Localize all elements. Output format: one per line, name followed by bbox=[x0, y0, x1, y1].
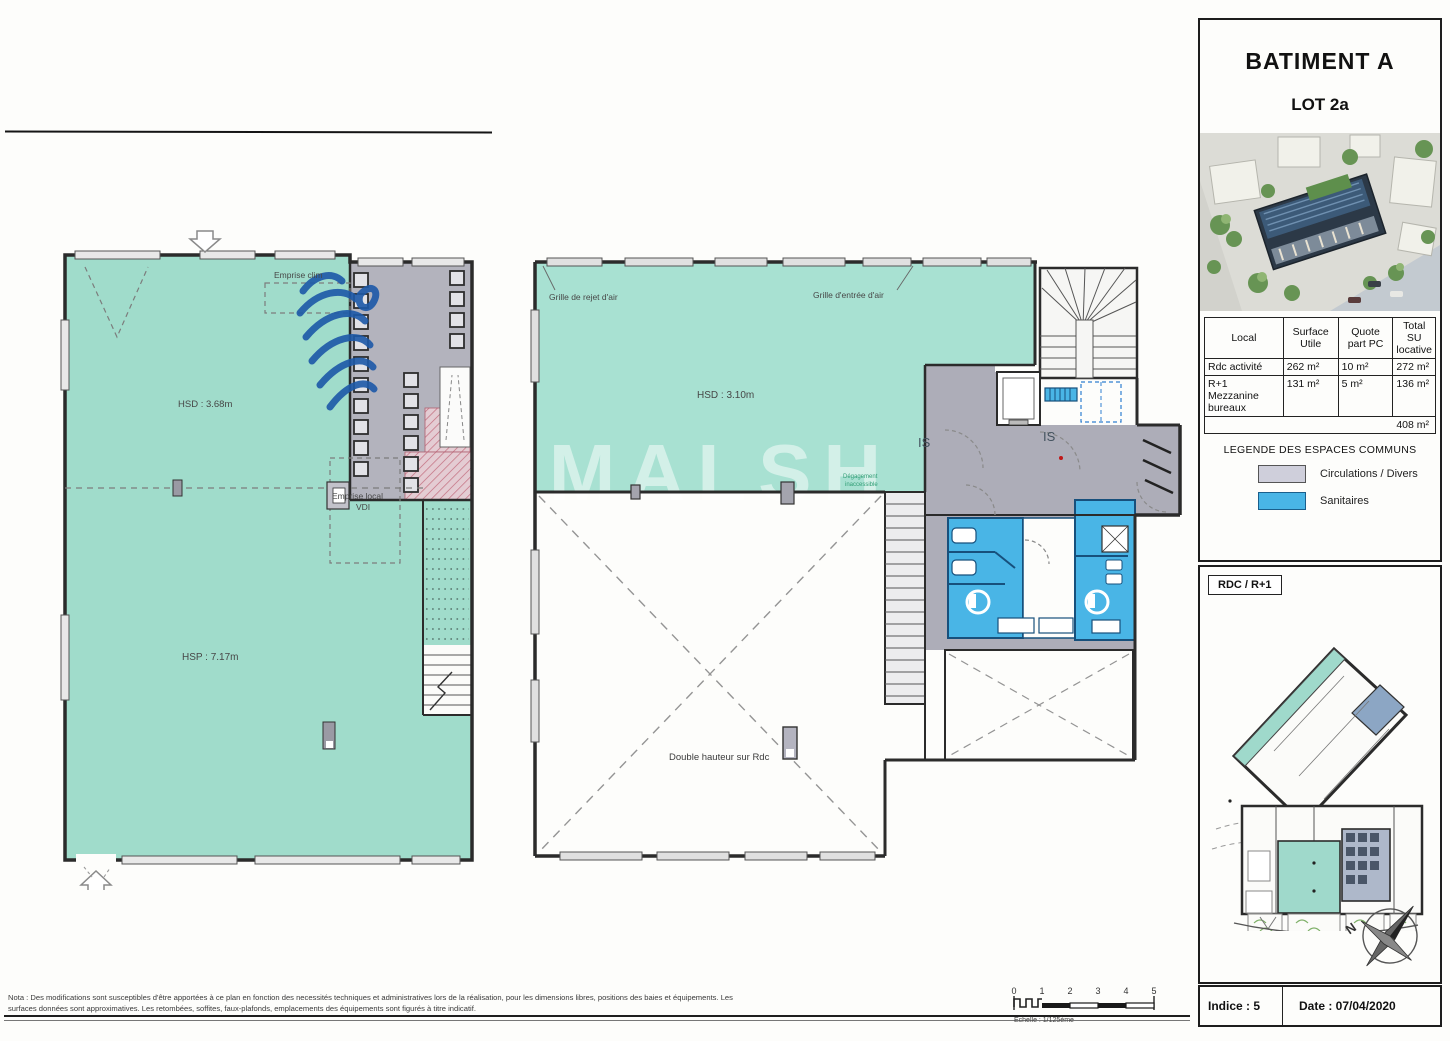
rdc-entry-door-gap bbox=[76, 854, 116, 865]
cell-total: 136 m² bbox=[1393, 376, 1436, 417]
cell-surface: 262 m² bbox=[1283, 359, 1338, 376]
key-plan-box: RDC / R+1 bbox=[1198, 565, 1442, 984]
cell-surface: 131 m² bbox=[1283, 376, 1338, 417]
r1-blue-grille bbox=[1045, 382, 1121, 422]
sanitaires-swatch bbox=[1258, 492, 1306, 510]
date-field: Date : 07/04/2020 bbox=[1283, 987, 1440, 1025]
legend-item-sanitaires: Sanitaires bbox=[1258, 492, 1440, 510]
label-degagement-2: inaccessible bbox=[845, 482, 878, 488]
label-hsd-r1: HSD : 3.10m bbox=[697, 390, 754, 401]
lot-title: LOT 2a bbox=[1200, 95, 1440, 115]
indice-field: Indice : 5 bbox=[1200, 987, 1283, 1025]
aerial-render-image bbox=[1200, 133, 1440, 311]
scale-tick-3: 3 bbox=[1095, 986, 1100, 996]
surface-table: Local Surface Utile Quote part PC Total … bbox=[1204, 317, 1436, 434]
cell-quote: 5 m² bbox=[1338, 376, 1393, 417]
legend-label: Circulations / Divers bbox=[1320, 468, 1418, 480]
label-hsd-rdc: HSD : 3.68m bbox=[178, 399, 232, 410]
rdc-room-fills bbox=[65, 255, 472, 860]
floor-plan-rdc: Emprise clim HSD : 3.68m Emprise local V… bbox=[60, 225, 475, 890]
r1-winder-stair bbox=[1040, 268, 1137, 378]
table-row: Rdc activité 262 m² 10 m² 272 m² bbox=[1205, 359, 1436, 376]
scale-caption: Echelle : 1/125ème bbox=[1014, 1017, 1074, 1024]
scale-tick-0: 0 bbox=[1011, 986, 1016, 996]
cell-total: 272 m² bbox=[1393, 359, 1436, 376]
label-emprise-vdi-1: Emprise local bbox=[332, 491, 383, 501]
table-total-row: 408 m² bbox=[1205, 417, 1436, 434]
title-block-footer: Indice : 5 Date : 07/04/2020 bbox=[1198, 985, 1442, 1027]
circulations-swatch bbox=[1258, 465, 1306, 483]
label-is-right: IS bbox=[1043, 429, 1056, 444]
scale-tick-1: 1 bbox=[1039, 986, 1044, 996]
cell-quote: 10 m² bbox=[1338, 359, 1393, 376]
r1-elevator bbox=[997, 372, 1040, 425]
cell-grand-total: 408 m² bbox=[1205, 417, 1436, 434]
label-is-left: IS bbox=[918, 435, 931, 450]
building-title: BATIMENT A bbox=[1200, 48, 1440, 75]
r1-straight-stair bbox=[885, 492, 925, 704]
label-grille-entree: Grille d'entrée d'air bbox=[813, 290, 884, 300]
key-plan-drawing bbox=[1204, 601, 1438, 931]
col-header-quote-part: Quote part PC bbox=[1338, 318, 1393, 359]
cell-local: R+1 Mezzanine bureaux bbox=[1205, 376, 1284, 417]
plan-sheet: Emprise clim HSD : 3.68m Emprise local V… bbox=[0, 0, 1450, 1041]
scale-bar: 0 1 2 3 4 5 Echelle : 1/125ème bbox=[1000, 982, 1190, 1030]
scale-tick-2: 2 bbox=[1067, 986, 1072, 996]
label-emprise-clim: Emprise clim bbox=[274, 270, 323, 280]
r1-right-void bbox=[945, 650, 1133, 760]
north-compass: N bbox=[1338, 894, 1430, 978]
label-grille-rejet: Grille de rejet d'air bbox=[549, 292, 618, 302]
scale-ticks: 0 1 2 3 4 5 bbox=[1011, 986, 1156, 996]
scale-bar-graphic bbox=[1014, 996, 1154, 1010]
legend: LEGENDE DES ESPACES COMMUNS Circulations… bbox=[1200, 444, 1440, 510]
cell-local: Rdc activité bbox=[1205, 359, 1284, 376]
label-emprise-vdi-2: VDI bbox=[356, 502, 370, 512]
label-double-hauteur: Double hauteur sur Rdc bbox=[669, 752, 770, 763]
rdc-entrance-arrow-bottom bbox=[81, 867, 111, 890]
label-hsp-rdc: HSP : 7.17m bbox=[182, 652, 239, 663]
legend-label: Sanitaires bbox=[1320, 495, 1369, 507]
col-header-total-su: Total SU locative bbox=[1393, 318, 1436, 359]
title-block-sidebar: BATIMENT A LOT 2a bbox=[1196, 14, 1444, 1032]
label-degagement-1: Dégagement bbox=[843, 474, 878, 480]
rdc-entrance-arrow-top bbox=[190, 231, 220, 252]
watermark: MALSH bbox=[549, 428, 893, 517]
scale-tick-4: 4 bbox=[1123, 986, 1128, 996]
legend-item-circulations: Circulations / Divers bbox=[1258, 465, 1440, 483]
nota-text: Nota : Des modifications sont susceptibl… bbox=[8, 992, 746, 1015]
scale-tick-5: 5 bbox=[1151, 986, 1156, 996]
col-header-local: Local bbox=[1205, 318, 1284, 359]
scan-artifact-line bbox=[5, 130, 492, 133]
table-row: R+1 Mezzanine bureaux 131 m² 5 m² 136 m² bbox=[1205, 376, 1436, 417]
compass-north-label: N bbox=[1343, 920, 1359, 938]
floor-plan-r1: MALSH bbox=[525, 250, 1185, 865]
r1-void-cross bbox=[539, 496, 881, 852]
title-block-top: BATIMENT A LOT 2a bbox=[1198, 18, 1442, 562]
col-header-surface-utile: Surface Utile bbox=[1283, 318, 1338, 359]
key-plan-level-tag: RDC / R+1 bbox=[1208, 575, 1282, 595]
legend-title: LEGENDE DES ESPACES COMMUNS bbox=[1200, 444, 1440, 456]
table-header-row: Local Surface Utile Quote part PC Total … bbox=[1205, 318, 1436, 359]
r1-sanitaires bbox=[948, 500, 1135, 640]
